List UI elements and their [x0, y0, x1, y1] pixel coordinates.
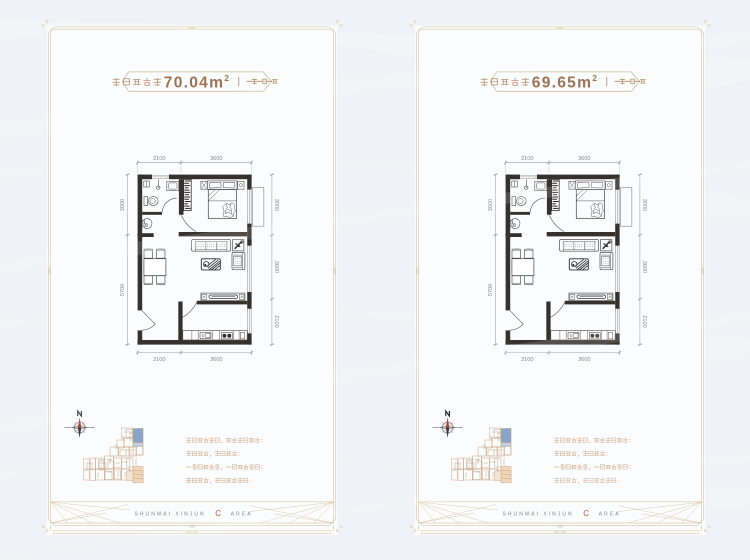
svg-text:3000: 3000 [641, 199, 647, 211]
svg-text:3600: 3600 [578, 357, 590, 363]
svg-text:2100: 2100 [273, 315, 279, 327]
svg-text:AREA: AREA [599, 511, 621, 517]
svg-text:69.65m: 69.65m [532, 74, 592, 91]
svg-text:2100: 2100 [521, 357, 533, 363]
svg-text:SHUNMAI XINJUN: SHUNMAI XINJUN [135, 511, 206, 517]
svg-text:3000: 3000 [273, 199, 279, 211]
svg-text:2: 2 [224, 73, 229, 83]
svg-text:3600: 3600 [210, 156, 222, 162]
svg-text:C: C [215, 509, 221, 518]
svg-text:AREA: AREA [231, 511, 253, 517]
svg-text:3600: 3600 [273, 261, 279, 273]
svg-text:C: C [583, 509, 589, 518]
svg-text:2100: 2100 [153, 156, 165, 162]
svg-text:2: 2 [592, 73, 597, 83]
svg-text:3600: 3600 [578, 156, 590, 162]
svg-text:3600: 3600 [641, 261, 647, 273]
svg-text:3600: 3600 [210, 357, 222, 363]
svg-text:3000: 3000 [120, 199, 126, 211]
svg-text:70.04m: 70.04m [164, 74, 224, 91]
svg-text:2100: 2100 [153, 357, 165, 363]
svg-text:5700: 5700 [120, 284, 126, 296]
svg-text:5700: 5700 [488, 284, 494, 296]
svg-text:2100: 2100 [521, 156, 533, 162]
svg-text:SHUNMAI XINJUN: SHUNMAI XINJUN [503, 511, 574, 517]
